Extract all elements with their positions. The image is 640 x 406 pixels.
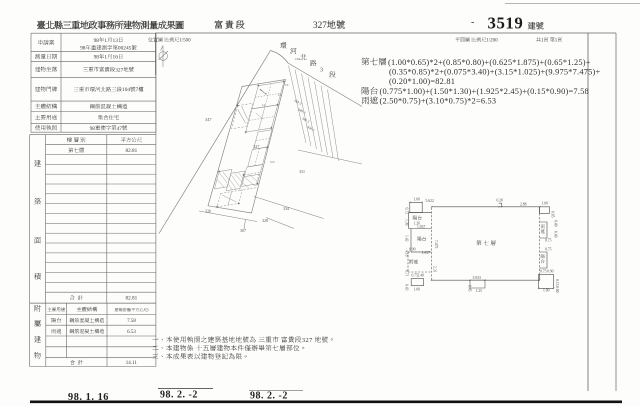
svg-text:327: 327 [302, 337, 313, 344]
svg-text:1.00: 1.00 [543, 289, 550, 293]
svg-text:2.40: 2.40 [418, 273, 425, 277]
svg-text:1.00: 1.00 [414, 288, 421, 292]
svg-text:7: 7 [136, 87, 139, 93]
svg-text:98: 98 [94, 38, 100, 44]
svg-text:13: 13 [113, 38, 119, 44]
svg-text:-: - [471, 17, 474, 28]
svg-text:3519: 3519 [488, 14, 524, 33]
svg-text:16: 16 [113, 55, 119, 61]
svg-text:345-1: 345-1 [301, 116, 310, 124]
svg-text:0.75: 0.75 [540, 270, 547, 274]
svg-text:0.20: 0.20 [497, 199, 504, 203]
svg-text:1.00: 1.00 [542, 202, 549, 206]
svg-text:4.18: 4.18 [404, 250, 408, 257]
svg-text:0.15: 0.15 [555, 279, 559, 286]
svg-text:1/500: 1/500 [179, 39, 191, 44]
svg-text:3: 3 [320, 68, 323, 74]
svg-text:331: 331 [299, 169, 305, 174]
svg-text:(0.20*1.00)=82.81: (0.20*1.00)=82.81 [389, 77, 455, 86]
svg-text:1.25: 1.25 [476, 289, 483, 293]
svg-text:0.71: 0.71 [404, 270, 408, 277]
svg-text:0.90: 0.90 [547, 270, 554, 274]
svg-text:1: 1 [104, 38, 107, 44]
svg-text:327: 327 [313, 20, 327, 30]
svg-text:98: 98 [94, 55, 100, 61]
svg-text:104: 104 [122, 87, 130, 93]
svg-text:3.933: 3.933 [473, 276, 481, 280]
svg-text:1.00: 1.00 [414, 198, 421, 202]
svg-text:307: 307 [240, 228, 246, 233]
svg-text:7.58: 7.58 [127, 319, 136, 324]
svg-text:0.72: 0.72 [404, 208, 408, 215]
svg-text:98. 2. -2: 98. 2. -2 [160, 390, 198, 401]
svg-text:0.90: 0.90 [555, 286, 559, 293]
svg-text:(0.775*1.00)+(1.50*1.30)+(1.92: (0.775*1.00)+(1.50*1.30)+(1.925*2.45)+(0… [380, 87, 589, 96]
svg-text:(1.00*0.65)*2+(0.85*0.80)+(0.6: (1.00*0.65)*2+(0.85*0.80)+(0.625*1.875)+… [388, 58, 591, 67]
svg-text:47: 47 [117, 126, 123, 132]
svg-text:304-1: 304-1 [306, 125, 315, 133]
svg-text:(2.50*0.75)+(3.10*0.75)*2=6.53: (2.50*0.75)+(3.10*0.75)*2=6.53 [380, 97, 497, 106]
svg-text:6.40: 6.40 [554, 231, 558, 238]
svg-text:1/200: 1/200 [486, 39, 498, 44]
svg-text:(0.35*0.85)*2+(0.075*3.40)+(3.: (0.35*0.85)*2+(0.075*3.40)+(3.15*1.025)+… [389, 67, 601, 76]
svg-text:0.45: 0.45 [468, 285, 472, 292]
svg-text:0.65: 0.65 [551, 211, 555, 218]
svg-text:): ) [147, 308, 149, 312]
svg-text:14.11: 14.11 [126, 361, 138, 366]
svg-text:2.31: 2.31 [433, 266, 437, 273]
svg-text:0.75: 0.75 [545, 239, 552, 243]
svg-text:0.75: 0.75 [545, 248, 552, 252]
svg-text:3.6: 3.6 [285, 84, 289, 87]
svg-text:00245: 00245 [118, 46, 132, 52]
svg-text:1: 1 [555, 39, 558, 44]
svg-text:104: 104 [295, 57, 300, 61]
svg-text:82.81: 82.81 [126, 296, 138, 302]
svg-text:0.43: 0.43 [404, 284, 408, 291]
svg-text:0.40: 0.40 [554, 220, 558, 227]
svg-text:326: 326 [205, 209, 211, 214]
svg-text:98: 98 [90, 126, 96, 132]
svg-text:0.90: 0.90 [409, 248, 416, 252]
svg-text:(: ( [130, 308, 132, 312]
svg-text:7.475: 7.475 [434, 240, 438, 248]
svg-text:6.53: 6.53 [127, 330, 136, 335]
svg-text:1.037: 1.037 [417, 225, 425, 229]
svg-text:1.42: 1.42 [404, 235, 408, 242]
svg-text:1: 1 [541, 39, 544, 44]
svg-text:5.622: 5.622 [426, 199, 434, 203]
svg-text:98: 98 [80, 46, 86, 52]
svg-text:10.6: 10.6 [270, 161, 275, 164]
svg-text:1.36: 1.36 [404, 219, 408, 226]
svg-text:1: 1 [104, 55, 107, 61]
svg-text:98. 2. -2: 98. 2. -2 [250, 391, 288, 402]
svg-text:327: 327 [115, 67, 123, 73]
svg-text:1.037: 1.037 [422, 251, 430, 255]
svg-text:2.88: 2.88 [520, 203, 527, 207]
svg-text:334: 334 [283, 206, 289, 211]
svg-text:82.81: 82.81 [126, 148, 138, 154]
svg-text:346-2: 346-2 [297, 107, 306, 115]
svg-text:347: 347 [205, 117, 212, 122]
svg-text:328: 328 [262, 218, 268, 223]
